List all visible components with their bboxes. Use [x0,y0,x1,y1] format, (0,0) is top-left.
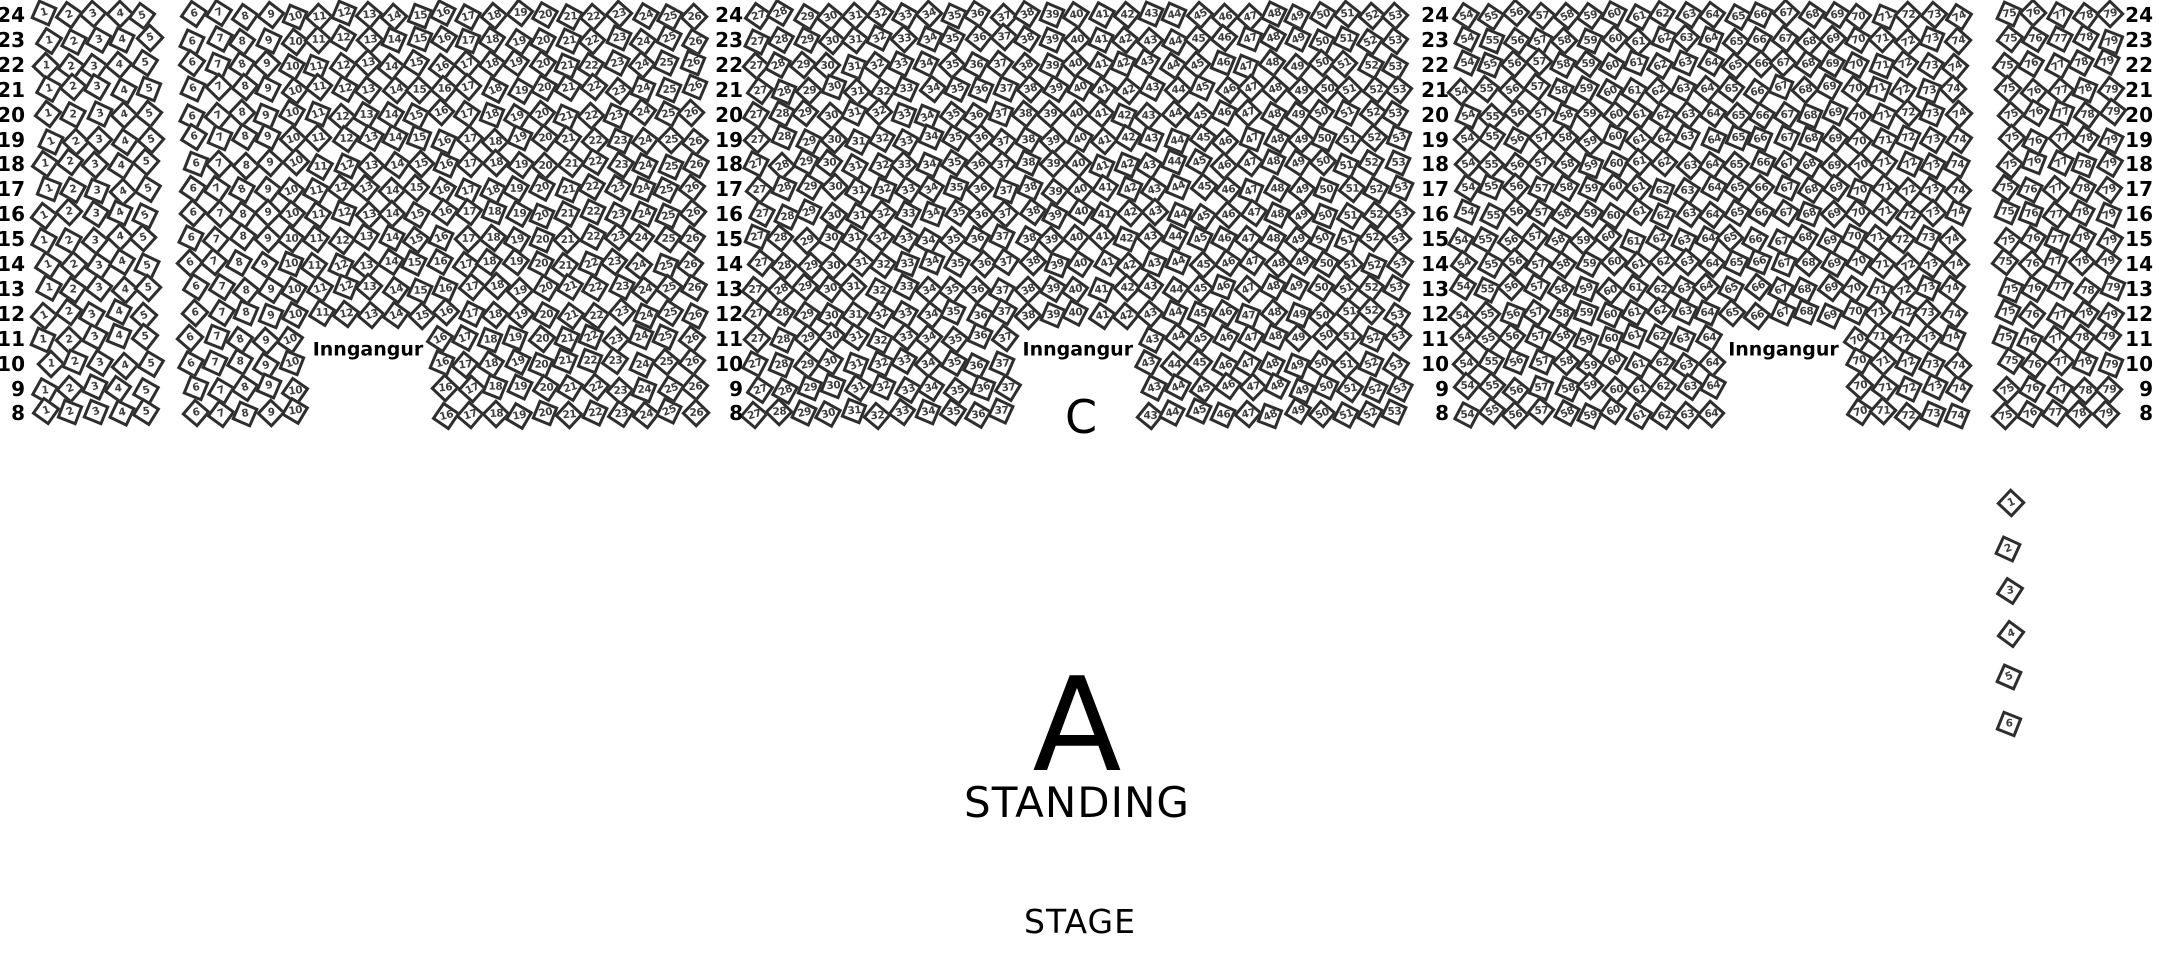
seat[interactable]: 69 [1822,99,1850,127]
seat[interactable]: 13 [351,222,380,251]
seat[interactable]: 77 [2041,200,2070,229]
seat[interactable]: 32 [868,124,897,153]
seat[interactable]: 67 [1772,198,1801,227]
seat[interactable]: 3 [80,226,110,256]
seat[interactable]: 49 [1284,25,1312,53]
seat[interactable]: 59 [1576,402,1604,430]
seat[interactable]: 68 [1797,103,1824,130]
seat[interactable]: 35 [939,298,967,326]
seat[interactable]: 67 [1769,299,1797,327]
seat[interactable]: 61 [1620,323,1647,350]
seat[interactable]: 41 [1090,173,1119,202]
seat[interactable]: 54 [1448,272,1477,301]
seat[interactable]: 64 [1697,26,1724,53]
seat[interactable]: 76 [2019,350,2048,379]
seat[interactable]: 4 [1996,619,2025,648]
seat[interactable]: 11 [306,152,335,181]
seat[interactable]: 57 [1526,148,1556,178]
seat[interactable]: 55 [1479,28,1506,55]
seat[interactable]: 72 [1893,401,1923,431]
seat[interactable]: 71 [1862,223,1891,252]
seat[interactable]: 49 [1284,323,1314,353]
seat[interactable]: 30 [818,252,848,282]
seat[interactable]: 2 [54,226,83,255]
seat[interactable]: 13 [356,300,386,330]
seat[interactable]: 8 [226,348,255,377]
seat[interactable]: 3 [80,150,110,180]
seat[interactable]: 57 [1527,397,1557,427]
seat[interactable]: 27 [739,401,769,431]
seat[interactable]: 44 [1164,373,1192,401]
seat[interactable]: 58 [1552,347,1582,377]
seat[interactable]: 1 [1996,488,2026,518]
seat[interactable]: 31 [840,99,868,127]
seat[interactable]: 8 [233,300,260,327]
seat[interactable]: 46 [1212,323,1240,351]
seat[interactable]: 2 [1994,535,2022,563]
seat[interactable]: 47 [1237,324,1266,353]
seat[interactable]: 2 [55,297,84,326]
seat[interactable]: 76 [2017,201,2044,228]
seat[interactable]: 78 [2069,175,2098,204]
seat[interactable]: 78 [2067,247,2097,277]
seat[interactable]: 54 [1453,401,1481,429]
seat[interactable]: 13 [356,123,385,152]
seat[interactable]: 16 [431,297,461,327]
seat[interactable]: 32 [865,0,894,29]
seat[interactable]: 73 [1919,25,1946,52]
seat[interactable]: 35 [943,75,971,103]
seat[interactable]: 23 [602,102,630,130]
seat[interactable]: 47 [1239,198,1268,227]
seat[interactable]: 40 [1061,299,1089,327]
seat[interactable]: 45 [1187,225,1215,253]
seat[interactable]: 21 [555,374,584,403]
seat[interactable]: 56 [1497,322,1526,351]
seat[interactable]: 23 [608,273,636,301]
seat[interactable]: 73 [1919,101,1947,129]
seat[interactable]: 24 [628,98,657,127]
seat[interactable]: 78 [2071,151,2098,178]
seat[interactable]: 36 [963,225,992,254]
seat[interactable]: 23 [604,174,633,203]
seat[interactable]: 63 [1671,49,1699,77]
seat[interactable]: 14 [376,52,406,82]
seat[interactable]: 33 [894,251,921,278]
seat[interactable]: 77 [2047,149,2075,177]
seat[interactable]: 43 [1138,74,1166,102]
seat[interactable]: 23 [607,151,636,180]
seat[interactable]: 10 [281,301,310,330]
seat[interactable]: 30 [820,172,850,202]
seat[interactable]: 74 [1943,402,1970,429]
seat[interactable]: 12 [331,125,360,154]
seat[interactable]: 34 [919,200,946,227]
seat[interactable]: 65 [1717,298,1747,328]
seat[interactable]: 22 [580,274,609,303]
seat[interactable]: 38 [1018,247,1048,277]
seat[interactable]: 27 [743,324,773,354]
seat[interactable]: 43 [1137,1,1165,29]
seat[interactable]: 71 [1864,323,1893,352]
seat[interactable]: 65 [1724,124,1751,151]
seat[interactable]: 39 [1038,1,1066,29]
seat[interactable]: 32 [869,200,898,229]
seat[interactable]: 18 [482,272,512,302]
seat[interactable]: 50 [1312,373,1340,401]
seat[interactable]: 7 [202,175,231,204]
seat[interactable]: 56 [1501,401,1531,431]
seat[interactable]: 52 [1357,51,1386,80]
seat[interactable]: 43 [1136,272,1165,301]
seat[interactable]: 58 [1552,173,1581,202]
seat[interactable]: 24 [624,251,653,280]
seat[interactable]: 70 [1844,2,1873,31]
seat[interactable]: 57 [1521,298,1550,327]
seat[interactable]: 73 [1921,373,1949,401]
seat[interactable]: 37 [991,247,1020,276]
seat[interactable]: 51 [1331,401,1359,429]
seat[interactable]: 49 [1286,77,1316,107]
seat[interactable]: 21 [555,272,584,301]
seat[interactable]: 34 [918,249,945,276]
seat[interactable]: 1 [30,0,58,26]
seat[interactable]: 19 [503,348,531,376]
seat[interactable]: 34 [915,398,943,426]
seat[interactable]: 16 [430,128,458,156]
seat[interactable]: 4 [107,247,136,276]
seat[interactable]: 64 [1699,99,1728,128]
seat[interactable]: 47 [1233,350,1262,379]
seat[interactable]: 19 [501,247,530,276]
seat[interactable]: 38 [1018,197,1047,226]
seat[interactable]: 45 [1185,397,1213,425]
seat[interactable]: 43 [1136,299,1166,329]
seat[interactable]: 31 [839,272,869,302]
seat[interactable]: 6 [1995,711,2022,738]
seat[interactable]: 23 [599,247,628,276]
seat[interactable]: 3 [84,273,113,302]
seat[interactable]: 72 [1891,49,1920,78]
seat[interactable]: 44 [1161,148,1188,175]
seat[interactable]: 28 [767,351,794,378]
seat[interactable]: 18 [478,102,505,129]
seat[interactable]: 78 [2067,323,2096,352]
seat[interactable]: 24 [631,126,660,155]
seat[interactable]: 22 [581,399,609,427]
seat[interactable]: 64 [1700,126,1728,154]
seat[interactable]: 19 [506,124,534,152]
seat[interactable]: 76 [2016,50,2045,79]
seat[interactable]: 33 [887,50,915,78]
seat[interactable]: 4 [104,50,134,80]
seat[interactable]: 48 [1262,174,1291,203]
seat[interactable]: 77 [2045,375,2074,404]
seat[interactable]: 37 [991,323,1020,352]
seat[interactable]: 63 [1672,247,1702,277]
seat[interactable]: 56 [1499,49,1529,79]
seat[interactable]: 64 [1697,1,1726,30]
seat[interactable]: 54 [1453,198,1481,226]
seat[interactable]: 2 [61,348,89,376]
seat[interactable]: 34 [914,0,944,28]
seat[interactable]: 73 [1919,0,1949,30]
seat[interactable]: 38 [1014,301,1044,331]
seat[interactable]: 64 [1697,249,1727,279]
seat[interactable]: 25 [656,125,686,155]
seat[interactable]: 66 [1746,173,1776,203]
seat[interactable]: 72 [1888,226,1917,255]
seat[interactable]: 54 [1453,49,1481,77]
seat[interactable]: 30 [819,201,848,230]
seat[interactable]: 33 [890,347,919,376]
seat[interactable]: 15 [406,149,436,179]
seat[interactable]: 68 [1793,49,1822,78]
seat[interactable]: 66 [1749,149,1777,177]
seat[interactable]: 47 [1238,126,1265,153]
seat[interactable]: 52 [1357,149,1386,178]
seat[interactable]: 57 [1523,273,1552,302]
seat[interactable]: 59 [1575,99,1605,129]
seat[interactable]: 4 [108,399,136,427]
seat[interactable]: 61 [1624,197,1653,226]
seat[interactable]: 60 [1599,396,1628,425]
seat[interactable]: 9 [256,373,284,401]
seat[interactable]: 68 [1797,0,1826,29]
seat[interactable]: 25 [655,273,684,302]
seat[interactable]: 32 [862,50,891,79]
seat[interactable]: 18 [481,198,508,225]
seat[interactable]: 30 [815,148,844,177]
seat[interactable]: 27 [743,125,773,155]
seat[interactable]: 25 [652,49,680,77]
seat[interactable]: 23 [604,76,634,106]
seat[interactable]: 74 [1937,225,1967,255]
seat[interactable]: 56 [1501,0,1531,28]
seat[interactable]: 16 [426,324,455,353]
seat[interactable]: 3 [84,125,114,155]
seat[interactable]: 55 [1479,202,1507,230]
seat[interactable]: 3 [81,323,109,351]
seat[interactable]: 19 [506,0,535,28]
seat[interactable]: 3 [83,177,110,204]
seat[interactable]: 36 [962,275,992,305]
seat[interactable]: 1 [30,301,60,331]
seat[interactable]: 18 [480,300,510,330]
seat[interactable]: 20 [527,174,555,202]
seat[interactable]: 38 [1013,25,1042,54]
seat[interactable]: 6 [178,198,208,228]
seat[interactable]: 10 [281,397,310,426]
seat[interactable]: 59 [1572,327,1599,354]
seat[interactable]: 48 [1257,402,1284,429]
seat[interactable]: 12 [329,24,358,53]
seat[interactable]: 11 [304,73,333,102]
seat[interactable]: 22 [577,173,606,202]
seat[interactable]: 44 [1160,99,1190,129]
seat[interactable]: 27 [745,376,774,405]
seat[interactable]: 9 [256,0,285,29]
seat[interactable]: 1 [36,350,66,380]
seat[interactable]: 4 [105,298,133,326]
seat[interactable]: 72 [1893,348,1921,376]
seat[interactable]: 32 [866,223,895,252]
seat[interactable]: 7 [204,149,234,179]
seat[interactable]: 3 [1995,576,2024,605]
seat[interactable]: 11 [307,299,336,328]
seat[interactable]: 43 [1140,250,1168,278]
seat[interactable]: 58 [1550,123,1580,153]
seat[interactable]: 16 [427,224,455,252]
seat[interactable]: 21 [553,199,581,227]
seat[interactable]: 13 [355,273,385,303]
seat[interactable]: 39 [1041,201,1069,229]
seat[interactable]: 28 [767,26,796,55]
seat[interactable]: 64 [1697,399,1727,429]
seat[interactable]: 2 [59,176,88,205]
seat[interactable]: 1 [34,27,63,56]
seat[interactable]: 8 [230,72,260,102]
seat[interactable]: 17 [452,100,481,129]
seat[interactable]: 50 [1307,400,1337,430]
seat[interactable]: 62 [1645,297,1674,326]
seat[interactable]: 9 [250,251,279,280]
seat[interactable]: 56 [1497,75,1527,105]
seat[interactable]: 49 [1282,273,1310,301]
seat[interactable]: 6 [181,398,211,428]
seat[interactable]: 60 [1600,347,1629,376]
seat[interactable]: 65 [1722,249,1750,277]
seat[interactable]: 2 [59,250,89,280]
seat[interactable]: 69 [1818,24,1848,54]
seat[interactable]: 3 [82,398,109,425]
seat[interactable]: 10 [280,76,309,105]
seat[interactable]: 61 [1621,273,1650,302]
seat[interactable]: 18 [482,374,509,401]
seat[interactable]: 6 [179,0,208,29]
seat[interactable]: 75 [1991,324,2019,352]
seat[interactable]: 59 [1578,153,1605,180]
seat[interactable]: 31 [843,177,872,206]
seat[interactable]: 49 [1282,52,1312,82]
seat[interactable]: 70 [1845,371,1875,401]
seat[interactable]: 7 [206,124,234,152]
seat[interactable]: 7 [199,247,229,277]
seat[interactable]: 71 [1868,25,1898,55]
seat[interactable]: 47 [1237,248,1266,277]
seat[interactable]: 67 [1769,49,1799,79]
seat[interactable]: 67 [1771,24,1800,53]
seat[interactable]: 14 [378,224,406,252]
seat[interactable]: 38 [1014,149,1042,177]
seat[interactable]: 52 [1356,296,1386,326]
seat[interactable]: 54 [1450,249,1479,278]
seat[interactable]: 2 [55,374,85,404]
seat[interactable]: 10 [277,199,307,229]
seat[interactable]: 55 [1477,123,1506,152]
seat[interactable]: 75 [1995,24,2024,53]
seat[interactable]: 6 [177,224,205,252]
seat[interactable]: 69 [1821,174,1850,203]
seat[interactable]: 74 [1939,324,1967,352]
seat[interactable]: 71 [1870,102,1898,130]
seat[interactable]: 2 [59,101,87,129]
seat[interactable]: 2 [54,197,84,227]
seat[interactable]: 30 [819,125,849,155]
seat[interactable]: 11 [303,201,332,230]
seat[interactable]: 4 [108,26,136,54]
seat[interactable]: 40 [1065,250,1094,279]
seat[interactable]: 28 [768,298,797,327]
seat[interactable]: 75 [1992,375,2022,405]
seat[interactable]: 48 [1259,24,1288,53]
seat[interactable]: 5 [131,322,160,351]
seat[interactable]: 59 [1572,276,1599,303]
seat[interactable]: 5 [131,397,160,426]
seat[interactable]: 74 [1944,99,1974,129]
seat[interactable]: 17 [451,324,479,352]
seat[interactable]: 74 [1944,199,1972,227]
seat[interactable]: 24 [626,223,655,252]
seat[interactable]: 59 [1572,299,1599,326]
seat[interactable]: 60 [1599,247,1629,277]
seat[interactable]: 8 [230,3,259,32]
seat[interactable]: 22 [577,26,607,56]
seat[interactable]: 40 [1066,198,1095,227]
seat[interactable]: 46 [1209,274,1236,301]
seat[interactable]: 4 [105,323,132,350]
seat[interactable]: 18 [481,399,511,429]
seat[interactable]: 59 [1571,75,1599,103]
seat[interactable]: 3 [78,0,108,29]
seat[interactable]: 74 [1945,374,1974,403]
seat[interactable]: 51 [1332,25,1360,53]
seat[interactable]: 12 [331,299,360,328]
seat[interactable]: 69 [1821,124,1850,153]
seat[interactable]: 78 [2068,199,2096,227]
seat[interactable]: 20 [527,324,556,353]
seat[interactable]: 63 [1669,325,1697,353]
seat[interactable]: 22 [580,198,608,226]
seat[interactable]: 48 [1260,0,1288,28]
seat[interactable]: 32 [869,373,897,401]
seat[interactable]: 58 [1553,399,1581,427]
seat[interactable]: 41 [1088,222,1118,252]
seat[interactable]: 14 [381,301,410,330]
seat[interactable]: 13 [353,75,382,104]
seat[interactable]: 50 [1308,148,1338,178]
seat[interactable]: 75 [1996,347,2025,376]
seat[interactable]: 52 [1357,350,1385,378]
seat[interactable]: 16 [430,373,460,403]
seat[interactable]: 10 [277,99,306,128]
seat[interactable]: 29 [794,76,824,106]
seat[interactable]: 41 [1087,100,1117,130]
seat[interactable]: 27 [741,350,769,378]
seat[interactable]: 16 [429,0,457,27]
seat[interactable]: 13 [351,173,381,203]
seat[interactable]: 71 [1867,250,1897,280]
seat[interactable]: 28 [766,0,795,27]
seat[interactable]: 2 [60,28,88,56]
seat[interactable]: 78 [2072,349,2100,377]
seat[interactable]: 75 [1990,248,2019,277]
seat[interactable]: 49 [1287,175,1316,204]
seat[interactable]: 48 [1262,372,1290,400]
seat[interactable]: 22 [580,148,609,177]
seat[interactable]: 67 [1773,174,1801,202]
seat[interactable]: 48 [1257,48,1286,77]
